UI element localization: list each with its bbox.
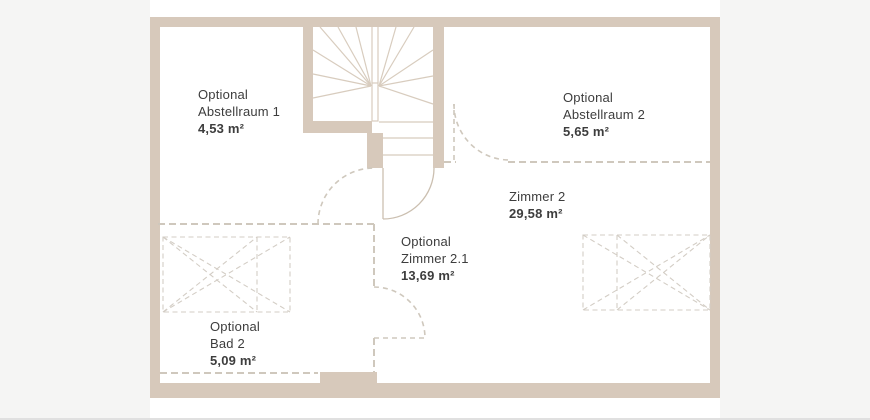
wall-bottom-protrusion <box>320 372 377 398</box>
room-area: 29,58 m² <box>509 205 566 222</box>
room-prefix: Optional <box>210 318 260 335</box>
room-label-zimmer-2-1: Optional Zimmer 2.1 13,69 m² <box>401 233 469 284</box>
optional-door-arc-abstellraum2 <box>454 104 509 160</box>
room-area: 4,53 m² <box>198 120 280 137</box>
floor-plan-svg <box>0 0 870 420</box>
room-name: Zimmer 2.1 <box>401 250 469 267</box>
room-name: Zimmer 2 <box>509 188 566 205</box>
room-area: 5,09 m² <box>210 352 260 369</box>
room-prefix: Optional <box>563 89 645 106</box>
wall-right <box>710 17 720 398</box>
room-prefix: Optional <box>198 86 280 103</box>
wall-stair-bottom <box>303 121 372 133</box>
room-name: Bad 2 <box>210 335 260 352</box>
door-arc <box>383 168 434 219</box>
wall-left <box>150 17 160 398</box>
optional-door-swings <box>318 104 509 338</box>
optional-door-arc-zimmer21 <box>374 287 425 338</box>
bed-symbol-left <box>163 237 290 312</box>
wall-door-post-left <box>367 133 383 168</box>
room-label-abstellraum-2: Optional Abstellraum 2 5,65 m² <box>563 89 645 140</box>
bed-symbol-right <box>583 235 710 310</box>
door-swing-stair <box>383 168 434 219</box>
room-area: 5,65 m² <box>563 123 645 140</box>
room-prefix: Optional <box>401 233 469 250</box>
wall-stair-right <box>433 27 444 168</box>
wall-bottom <box>150 383 720 398</box>
room-label-zimmer-2: Zimmer 2 29,58 m² <box>509 188 566 222</box>
room-area: 13,69 m² <box>401 267 469 284</box>
wall-stair-left <box>303 27 313 121</box>
room-label-abstellraum-1: Optional Abstellraum 1 4,53 m² <box>198 86 280 137</box>
stair-newel <box>372 83 378 121</box>
wall-top <box>150 17 720 27</box>
room-name: Abstellraum 2 <box>563 106 645 123</box>
optional-door-arc-hall <box>318 168 374 224</box>
room-name: Abstellraum 1 <box>198 103 280 120</box>
room-label-bad-2: Optional Bad 2 5,09 m² <box>210 318 260 369</box>
